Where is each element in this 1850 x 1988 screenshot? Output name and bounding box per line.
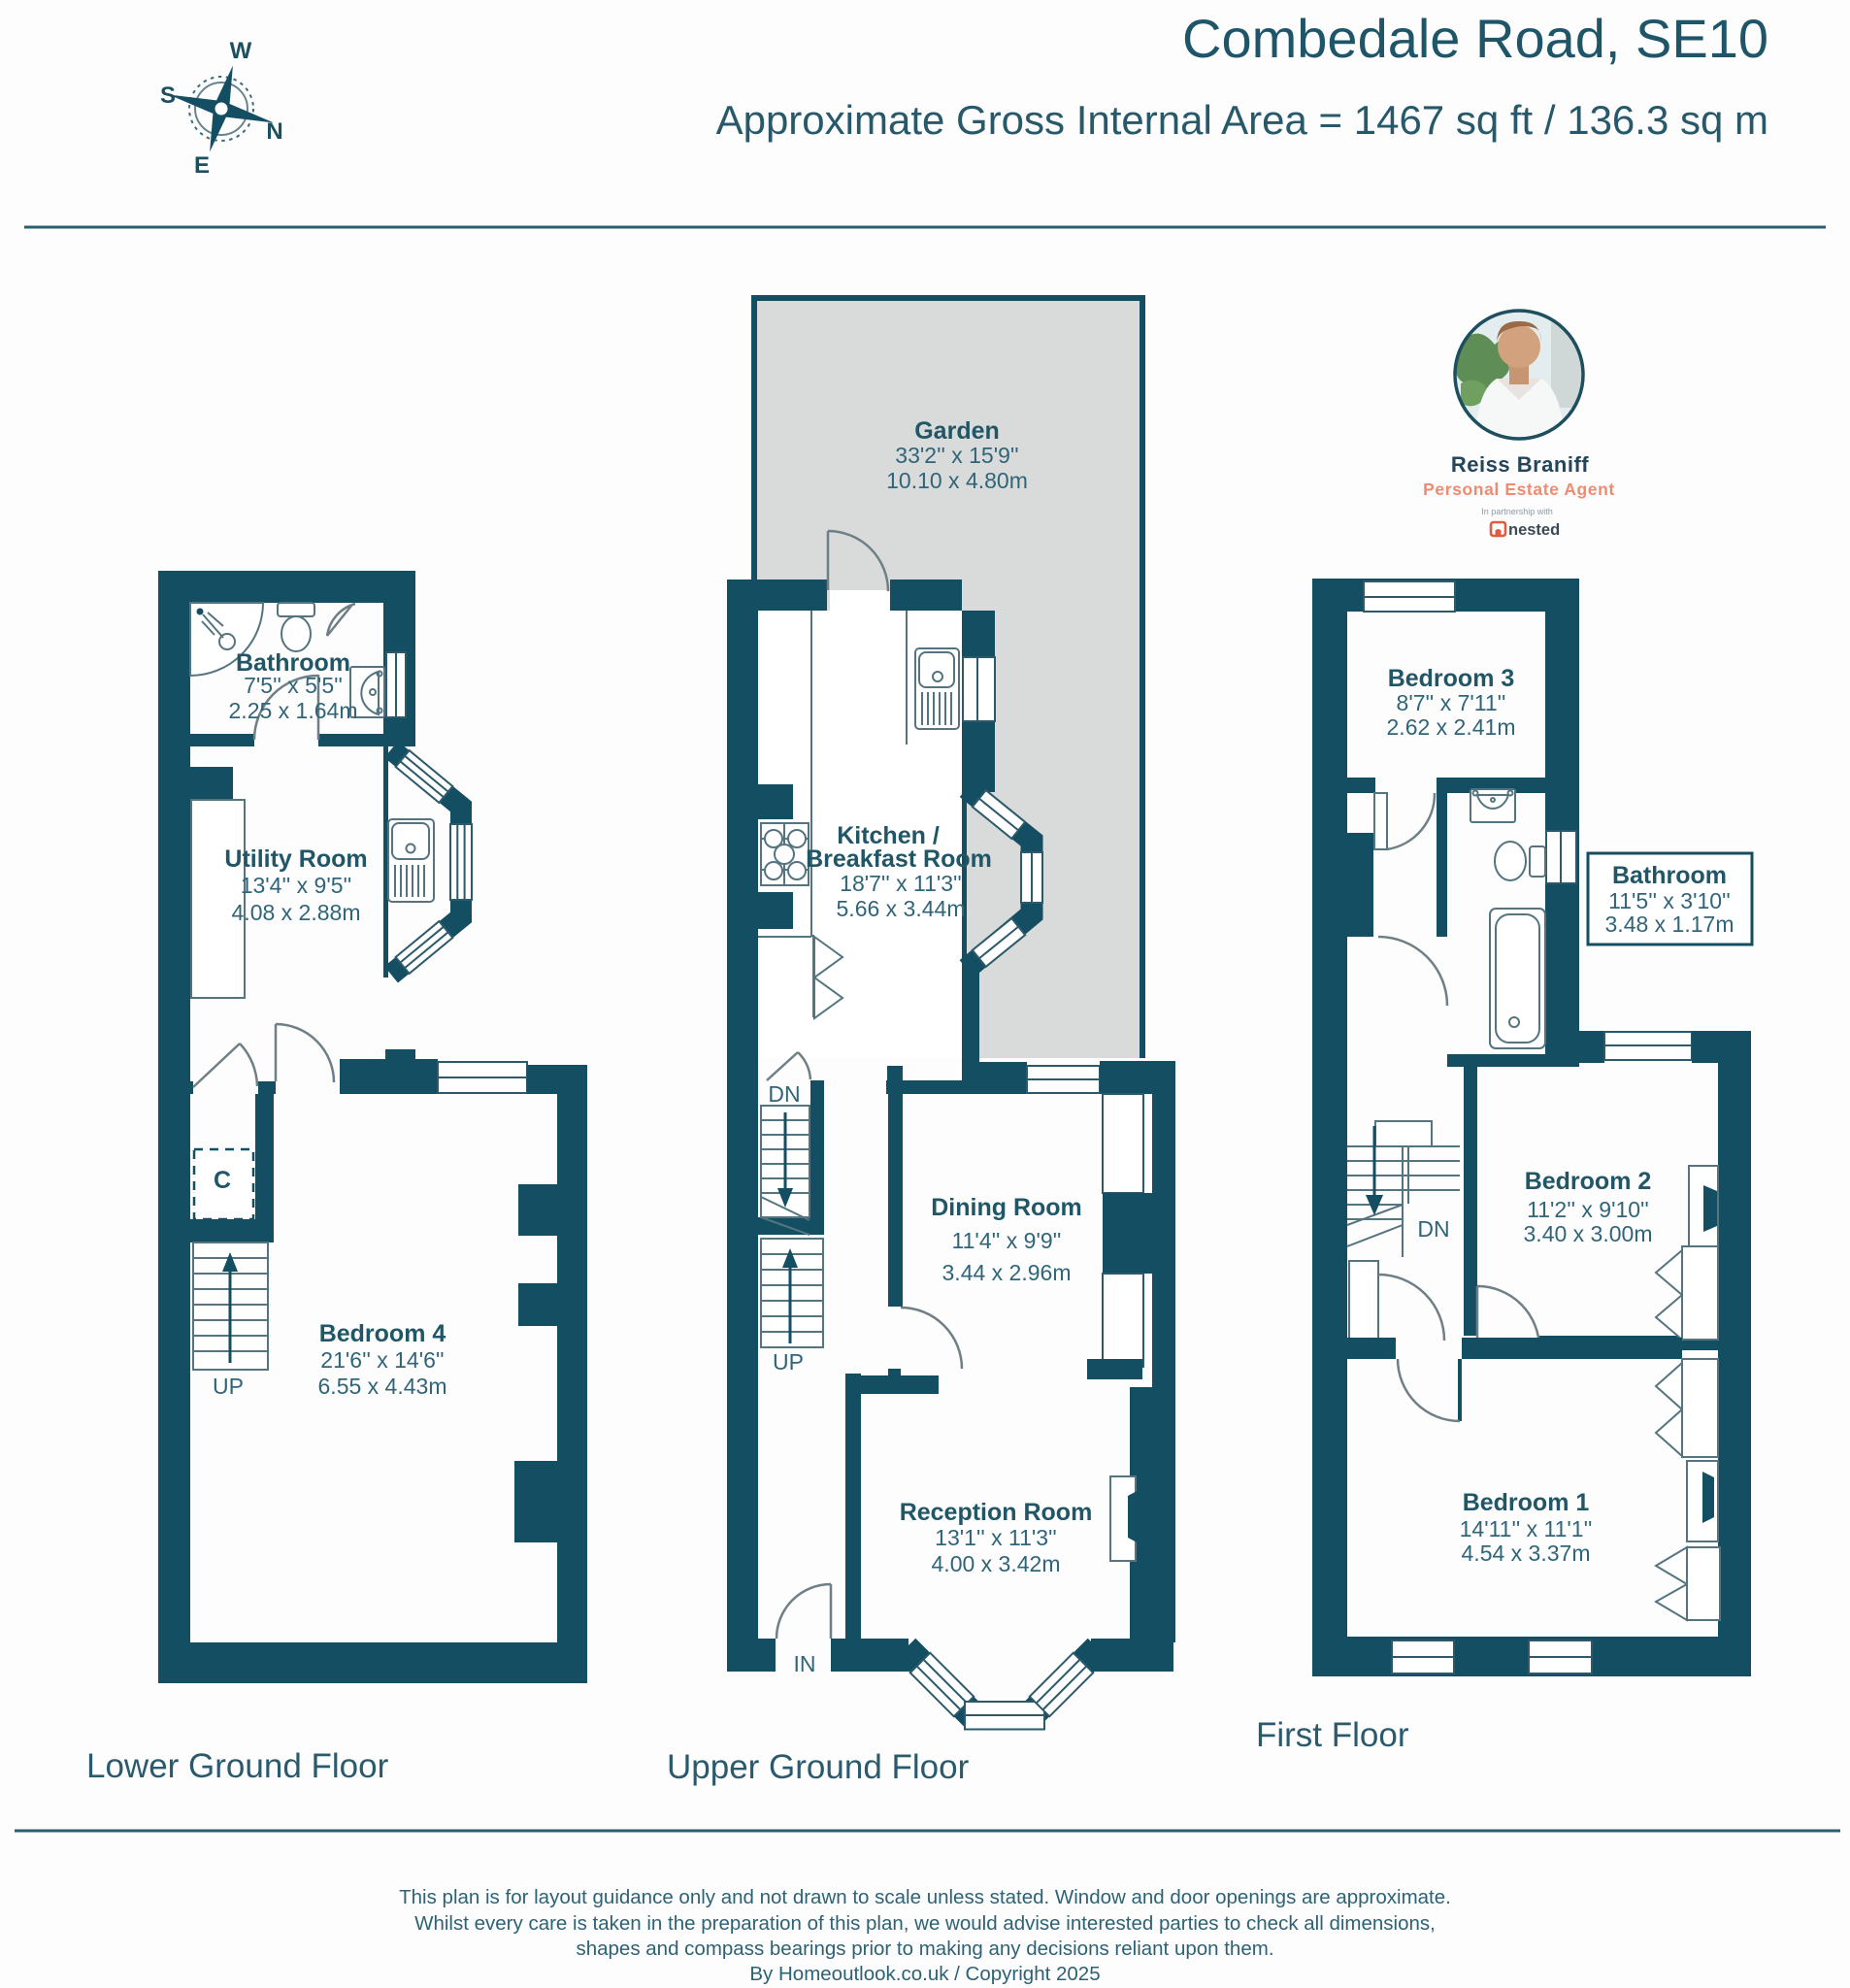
svg-text:UP: UP — [213, 1374, 244, 1399]
svg-text:Personal Estate Agent: Personal Estate Agent — [1423, 480, 1615, 499]
svg-text:Bedroom 4: Bedroom 4 — [319, 1320, 446, 1347]
svg-text:3.44 x 2.96m: 3.44 x 2.96m — [942, 1260, 1072, 1285]
svg-text:11'2'' x 9'10'': 11'2'' x 9'10'' — [1527, 1197, 1649, 1222]
svg-text:Garden: Garden — [914, 417, 1000, 445]
svg-text:nested: nested — [1508, 521, 1560, 539]
svg-text:E: E — [194, 152, 210, 179]
svg-text:2.25 x 1.64m: 2.25 x 1.64m — [229, 698, 358, 723]
svg-text:shapes and compass bearings pr: shapes and compass bearings prior to mak… — [576, 1938, 1273, 1960]
svg-text:First Floor: First Floor — [1256, 1716, 1409, 1754]
svg-text:14'11'' x 11'1'': 14'11'' x 11'1'' — [1460, 1516, 1593, 1541]
svg-text:W: W — [230, 38, 252, 64]
svg-text:UP: UP — [773, 1349, 804, 1375]
svg-text:10.10 x 4.80m: 10.10 x 4.80m — [886, 468, 1028, 493]
svg-text:DN: DN — [1417, 1216, 1449, 1242]
svg-text:Bathroom: Bathroom — [1612, 862, 1727, 889]
svg-text:7'5'' x 5'5'': 7'5'' x 5'5'' — [244, 673, 343, 698]
svg-text:Approximate Gross Internal Are: Approximate Gross Internal Area = 1467 s… — [716, 97, 1768, 143]
svg-text:13'4'' x 9'5'': 13'4'' x 9'5'' — [241, 873, 352, 898]
svg-text:N: N — [266, 118, 282, 145]
svg-text:2.62 x 2.41m: 2.62 x 2.41m — [1387, 714, 1516, 740]
svg-text:This plan is for layout guidan: This plan is for layout guidance only an… — [399, 1886, 1451, 1908]
svg-text:DN: DN — [768, 1081, 800, 1107]
svg-text:6.55 x 4.43m: 6.55 x 4.43m — [318, 1374, 447, 1399]
svg-text:Reiss Braniff: Reiss Braniff — [1451, 452, 1589, 477]
svg-text:Breakfast Room: Breakfast Room — [806, 845, 992, 873]
svg-text:13'1'' x 11'3'': 13'1'' x 11'3'' — [935, 1525, 1057, 1550]
svg-text:3.40 x 3.00m: 3.40 x 3.00m — [1524, 1221, 1653, 1246]
svg-text:Reception Room: Reception Room — [900, 1499, 1093, 1526]
svg-text:4.08 x 2.88m: 4.08 x 2.88m — [232, 900, 361, 925]
svg-text:Utility Room: Utility Room — [224, 845, 367, 873]
svg-text:33'2'' x 15'9'': 33'2'' x 15'9'' — [895, 443, 1018, 468]
svg-text:18'7'' x 11'3'': 18'7'' x 11'3'' — [840, 871, 962, 896]
svg-text:Lower Ground Floor: Lower Ground Floor — [86, 1747, 389, 1785]
svg-text:Whilst every care is taken in: Whilst every care is taken in the prepar… — [414, 1912, 1436, 1935]
svg-text:IN: IN — [794, 1651, 816, 1676]
svg-text:4.54 x 3.37m: 4.54 x 3.37m — [1462, 1541, 1591, 1566]
svg-text:11'5'' x 3'10'': 11'5'' x 3'10'' — [1608, 888, 1731, 913]
svg-text:C: C — [214, 1167, 231, 1194]
svg-text:By Homeoutlook.co.uk / Copyrig: By Homeoutlook.co.uk / Copyright 2025 — [749, 1963, 1100, 1985]
svg-text:11'4'' x 9'9'': 11'4'' x 9'9'' — [952, 1228, 1062, 1253]
svg-text:In partnership with: In partnership with — [1481, 507, 1553, 516]
svg-text:4.00 x 3.42m: 4.00 x 3.42m — [932, 1551, 1061, 1576]
svg-text:Bedroom 2: Bedroom 2 — [1525, 1168, 1652, 1195]
svg-text:Bedroom 1: Bedroom 1 — [1463, 1489, 1590, 1516]
svg-text:Upper Ground Floor: Upper Ground Floor — [667, 1748, 970, 1786]
svg-text:Dining Room: Dining Room — [931, 1194, 1082, 1221]
svg-text:S: S — [160, 83, 176, 109]
svg-text:Bedroom 3: Bedroom 3 — [1388, 665, 1515, 692]
svg-text:3.48 x 1.17m: 3.48 x 1.17m — [1605, 911, 1734, 937]
svg-text:21'6'' x 14'6'': 21'6'' x 14'6'' — [320, 1347, 444, 1373]
svg-text:5.66 x 3.44m: 5.66 x 3.44m — [837, 896, 966, 921]
svg-text:8'7'' x 7'11'': 8'7'' x 7'11'' — [1397, 690, 1506, 715]
svg-text:Combedale Road, SE10: Combedale Road, SE10 — [1182, 8, 1768, 69]
